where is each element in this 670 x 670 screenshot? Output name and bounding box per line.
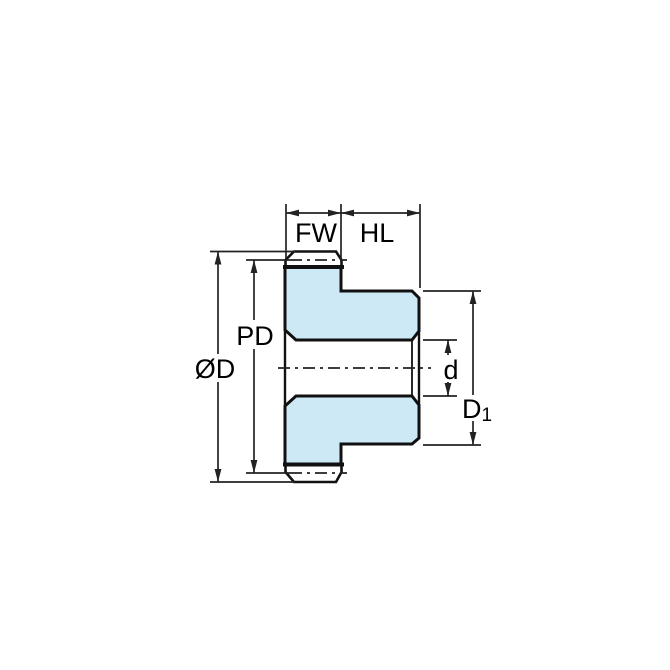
technical-drawing-canvas: FW HL PD ØD d D1 bbox=[0, 0, 670, 670]
arrowhead-hl-right bbox=[407, 210, 420, 217]
gear-body-lower-section bbox=[285, 396, 419, 465]
arrowhead-pd-top bbox=[251, 260, 258, 273]
gear-tooth-top bbox=[286, 252, 342, 267]
arrowhead-pd-bottom bbox=[251, 460, 258, 473]
arrowhead-fw-left bbox=[286, 210, 299, 217]
arrowhead-od-top bbox=[215, 252, 222, 265]
arrowhead-d1-bottom bbox=[470, 432, 477, 445]
label-hub-diameter: D1 bbox=[462, 394, 492, 426]
arrowhead-d-top bbox=[445, 340, 452, 353]
label-hub-length: HL bbox=[360, 218, 395, 248]
label-pitch-diameter: PD bbox=[236, 321, 274, 351]
gear-dimension-diagram: FW HL PD ØD d D1 bbox=[0, 0, 670, 670]
label-outside-diameter: ØD bbox=[195, 354, 236, 384]
arrowhead-hl-left bbox=[341, 210, 354, 217]
label-hub-diameter-main: D bbox=[462, 394, 482, 424]
label-hub-diameter-subscript: 1 bbox=[482, 405, 493, 426]
label-bore-diameter: d bbox=[443, 355, 458, 385]
label-face-width: FW bbox=[295, 218, 337, 248]
arrowhead-od-bottom bbox=[215, 469, 222, 482]
arrowhead-fw-right bbox=[328, 210, 341, 217]
gear-body-upper-section bbox=[285, 267, 419, 340]
arrowhead-d1-top bbox=[470, 291, 477, 304]
gear-cross-section bbox=[283, 252, 419, 483]
